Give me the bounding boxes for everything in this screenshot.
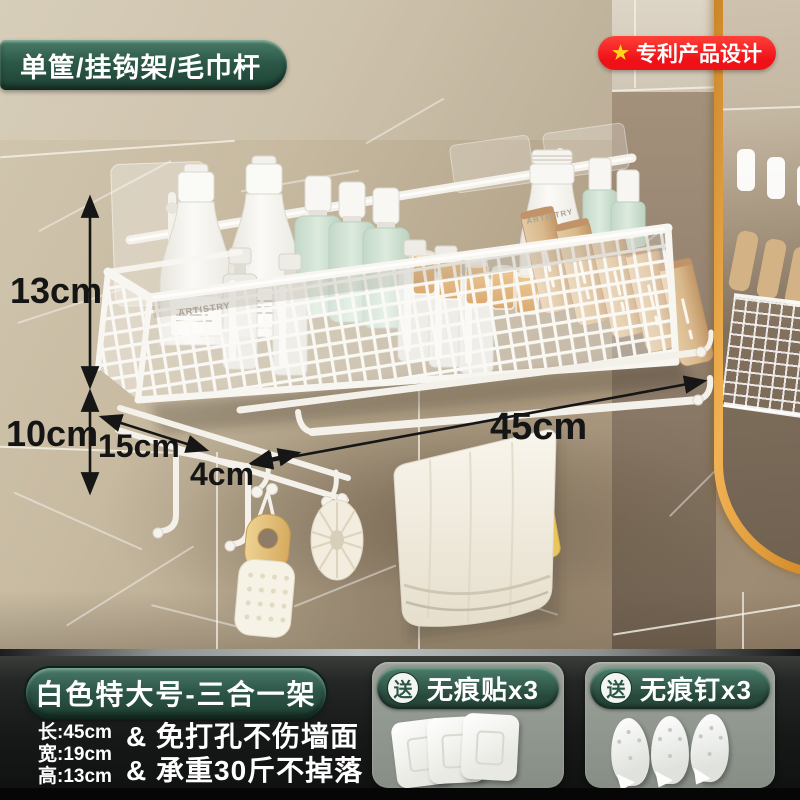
gift-label: 无痕贴x3 bbox=[427, 670, 539, 707]
feature-load: & 承重30斤不掉落 bbox=[126, 754, 363, 788]
gift-tag: 送 bbox=[600, 672, 632, 704]
towel bbox=[394, 430, 562, 627]
feature-list: & 免打孔不伤墙面 & 承重30斤不掉落 bbox=[126, 720, 363, 788]
patent-badge-label: 专利产品设计 bbox=[636, 38, 762, 68]
gift-badge: 送 无痕钉x3 bbox=[590, 667, 770, 709]
seamless-nail-icon bbox=[689, 713, 732, 783]
gift-card-stickers: 送 无痕贴x3 bbox=[372, 662, 564, 788]
footer-divider bbox=[0, 649, 800, 656]
product-title-badge: 白色特大号-三合一架 bbox=[26, 668, 326, 718]
spec-height: 高:13cm bbox=[38, 766, 112, 788]
gift-tag: 送 bbox=[387, 672, 419, 704]
feature-no-drill: & 免打孔不伤墙面 bbox=[126, 720, 363, 754]
dimension-hook-drop-label: 10cm bbox=[6, 413, 98, 455]
mesh-scrubber bbox=[311, 500, 363, 580]
seamless-nail-icon bbox=[651, 716, 689, 784]
footer-panel: 白色特大号-三合一架 长:45cm 宽:19cm 高:13cm & 免打孔不伤墙… bbox=[0, 656, 800, 788]
sticker-images bbox=[372, 712, 564, 784]
nail-images bbox=[585, 712, 775, 784]
gift-card-nails: 送 无痕钉x3 bbox=[585, 662, 775, 788]
cleaning-brush bbox=[233, 490, 301, 638]
dimension-height-label: 13cm bbox=[10, 270, 102, 312]
spec-list: 长:45cm 宽:19cm 高:13cm bbox=[38, 722, 112, 788]
spec-length: 长:45cm bbox=[38, 722, 112, 744]
adhesive-sticker-icon bbox=[460, 713, 519, 782]
dimension-width-label: 45cm bbox=[490, 406, 587, 449]
gift-badge: 送 无痕贴x3 bbox=[377, 667, 559, 709]
spec-width: 宽:19cm bbox=[38, 744, 112, 766]
bottom-black-bar bbox=[0, 788, 800, 800]
dimension-hook-gap-label: 4cm bbox=[190, 456, 254, 493]
wall-rack-photo bbox=[0, 0, 800, 655]
gift-label: 无痕钉x3 bbox=[640, 670, 752, 707]
category-badge-label: 单筐/挂钩架/毛巾杆 bbox=[20, 46, 261, 85]
patent-badge: ★ 专利产品设计 bbox=[598, 36, 776, 70]
product-listing-image: 单筐/挂钩架/毛巾杆 ★ 专利产品设计 13cm 10cm 15cm 4cm 4… bbox=[0, 0, 800, 800]
category-badge: 单筐/挂钩架/毛巾杆 bbox=[0, 40, 287, 90]
dimension-depth-label: 15cm bbox=[98, 428, 180, 465]
star-icon: ★ bbox=[612, 44, 629, 63]
seamless-nail-icon bbox=[609, 717, 652, 787]
product-title: 白色特大号-三合一架 bbox=[35, 673, 316, 713]
